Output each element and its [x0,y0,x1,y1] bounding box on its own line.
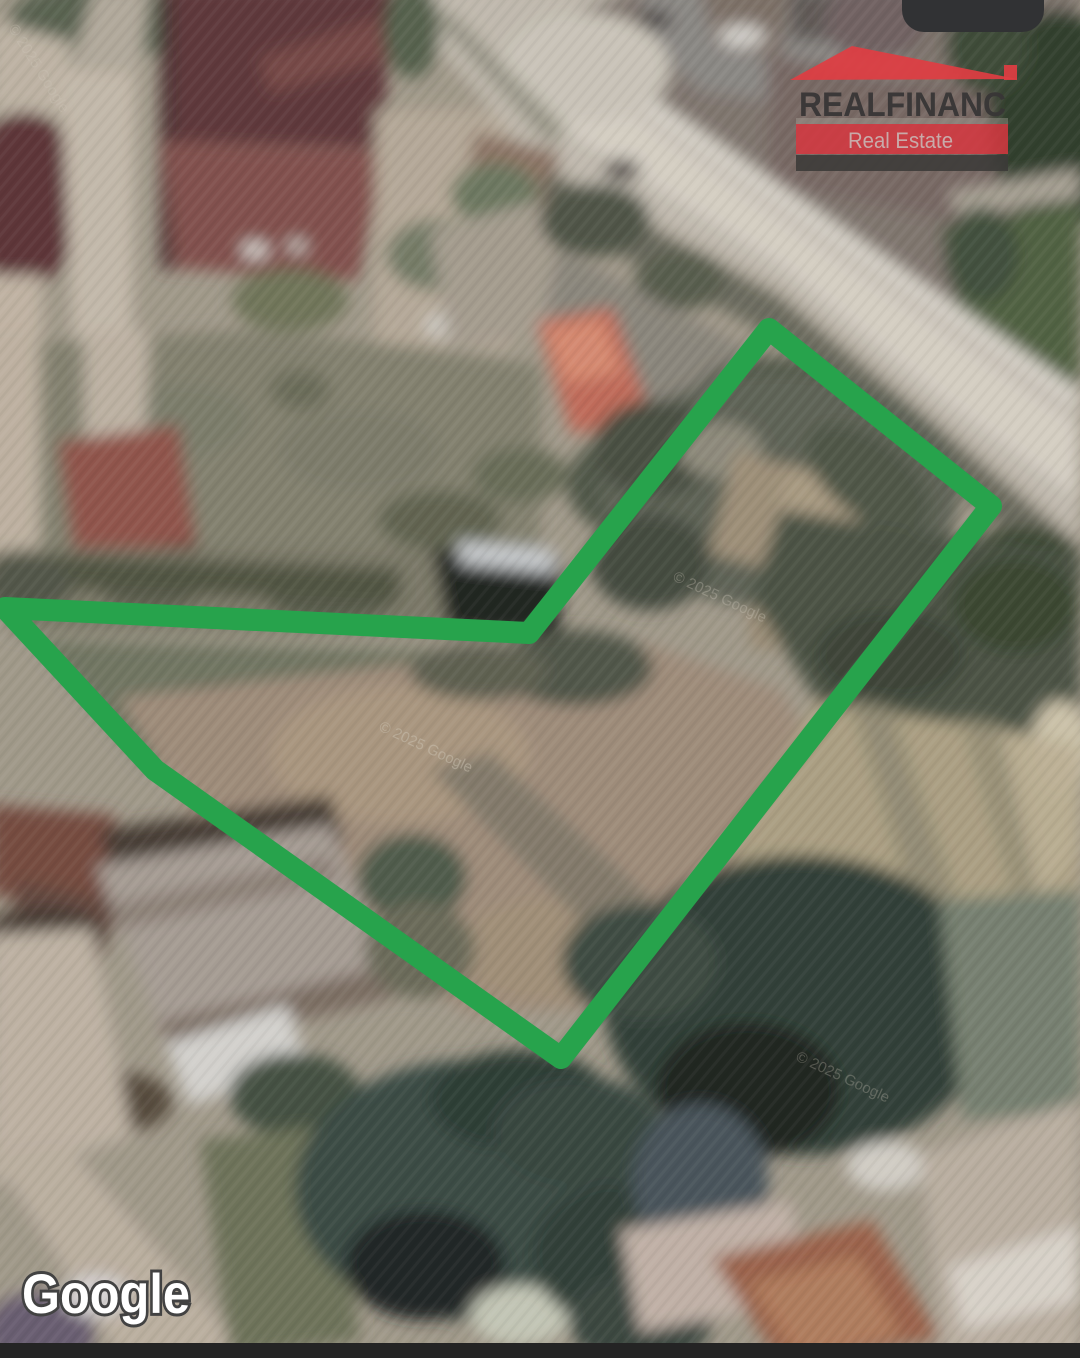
svg-text:Google: Google [22,1262,190,1325]
svg-text:Real Estate: Real Estate [848,128,953,153]
